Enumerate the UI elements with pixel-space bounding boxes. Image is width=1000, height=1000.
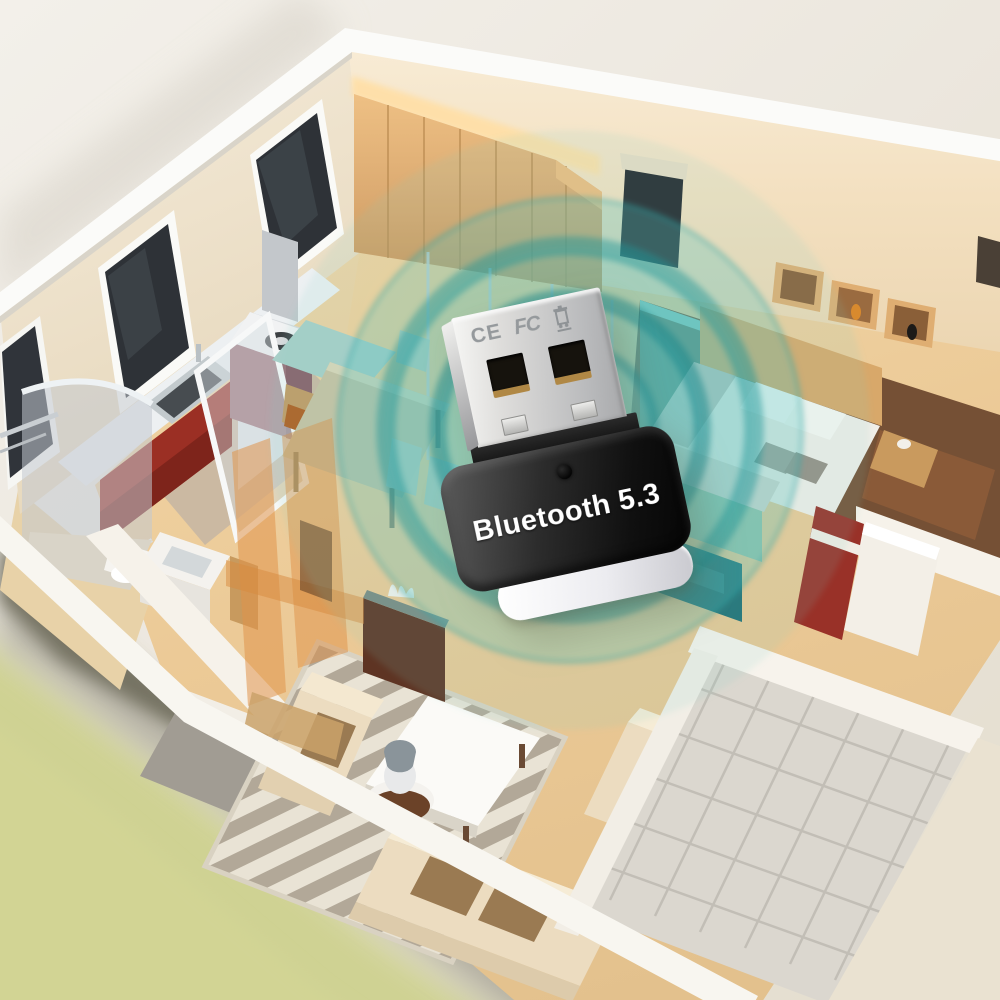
wall-niche — [976, 236, 1000, 288]
indicator-led — [556, 463, 574, 481]
usb-hole-right — [548, 339, 592, 385]
weee-crossed-bin-icon — [550, 303, 575, 334]
product-label: Bluetooth 5.3 — [447, 472, 687, 554]
product-marketing-image: CE FC Bluetooth 5.3 — [0, 0, 1000, 1000]
usb-contact-right — [570, 399, 598, 421]
ce-mark: CE — [469, 319, 504, 349]
fcc-mark: FC — [512, 311, 542, 340]
usb-contact-left — [501, 414, 529, 436]
usb-hole-left — [486, 352, 530, 398]
